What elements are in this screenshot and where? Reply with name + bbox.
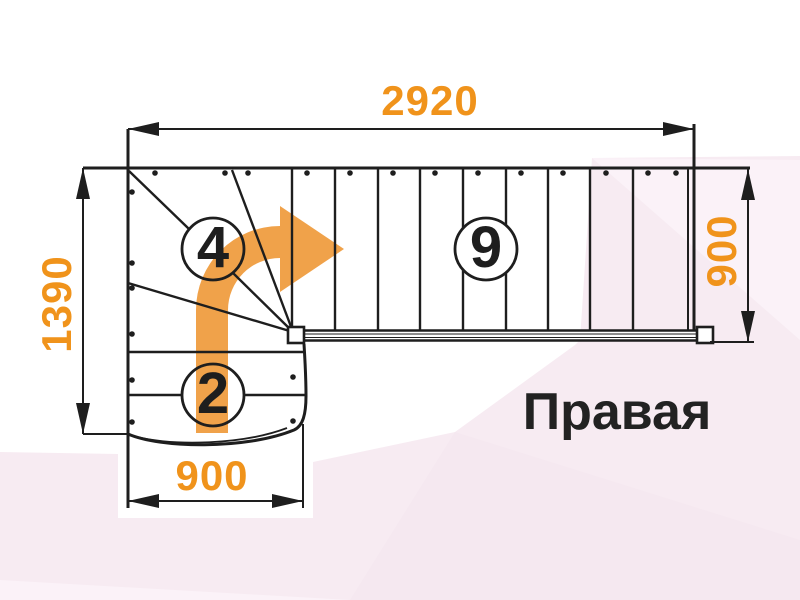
plan-title: Правая [523,386,712,438]
dimension-label-right: 900 [701,214,743,287]
dimension-label-left: 1390 [36,255,78,352]
step-count-straight: 9 [470,219,502,277]
stair-plan-screenshot: 2920 1390 900 900 4 9 2 Правая [0,0,800,600]
step-count-winder: 4 [197,219,229,277]
stringer-band [303,330,697,341]
newel-post-left [288,327,304,343]
dimension-label-top: 2920 [381,80,478,122]
newel-post-right [697,327,713,343]
stair-outline [83,124,750,508]
dimension-label-bottom: 900 [175,455,248,497]
step-count-lower: 2 [197,365,229,423]
dimension-arrowheads [76,122,755,508]
